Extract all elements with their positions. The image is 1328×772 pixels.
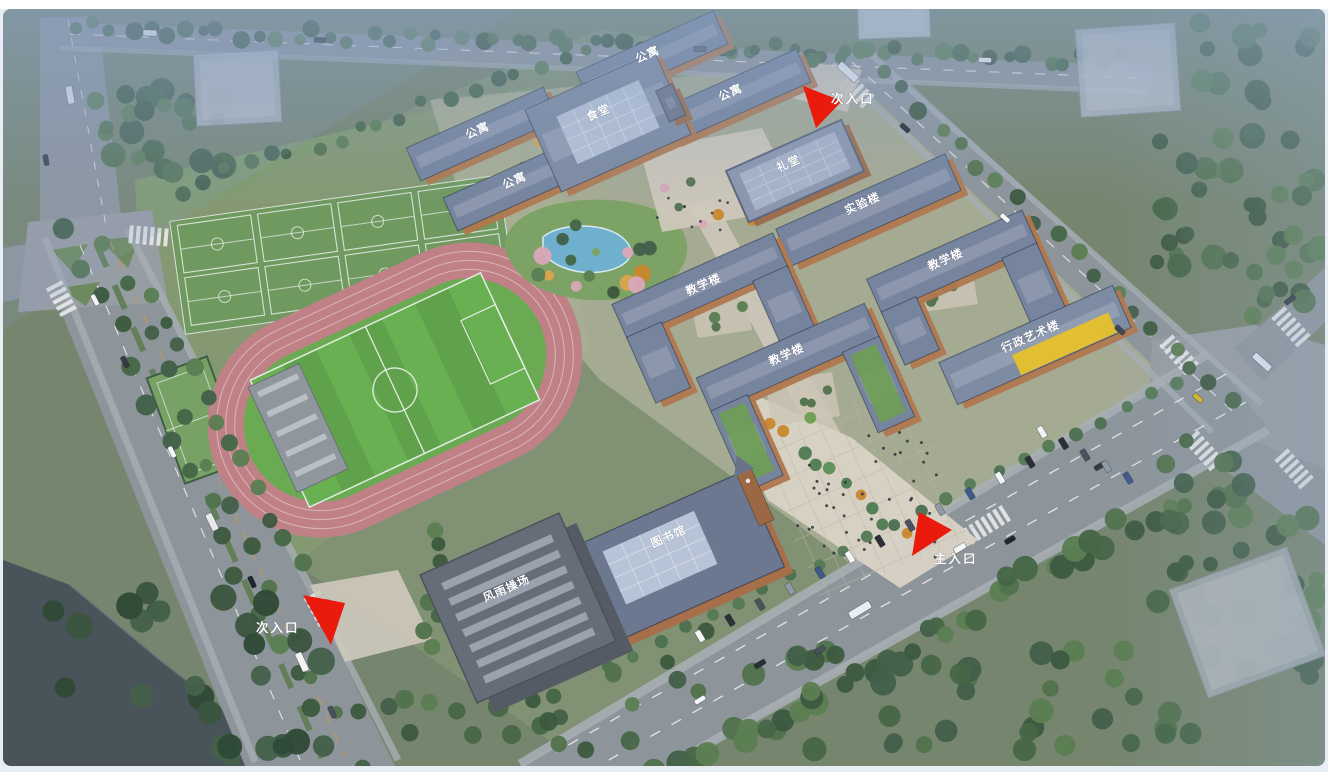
person-dot [796, 524, 799, 527]
person-dot [656, 216, 659, 219]
person-dot [898, 431, 901, 434]
rendering-frame: 次入口主入口次入口公寓公寓公寓公寓食堂礼堂实验楼教学楼教学楼教学楼行政艺术楼图书… [3, 9, 1325, 766]
person-dot [863, 548, 866, 551]
person-dot [857, 539, 860, 542]
person-dot [808, 528, 811, 531]
person-dot [832, 506, 835, 509]
person-dot [845, 531, 848, 534]
person-dot [811, 526, 814, 529]
person-dot [928, 512, 931, 515]
person-dot [888, 498, 891, 501]
person-dot [912, 480, 915, 483]
person-dot [719, 228, 722, 231]
person-dot [935, 473, 938, 476]
person-dot [874, 460, 877, 463]
person-dot [869, 541, 872, 544]
person-dot [844, 481, 847, 484]
person-dot [842, 493, 845, 496]
secondary-entrance-west-label: 次入口 [256, 620, 300, 635]
person-dot [906, 440, 909, 443]
person-dot [832, 552, 835, 555]
person-dot [691, 226, 694, 229]
main-entrance-label: 主入口 [934, 551, 978, 566]
person-dot [808, 464, 811, 467]
person-dot [813, 487, 816, 490]
person-dot [867, 434, 870, 437]
person-dot [926, 452, 929, 455]
atmospheric-haze-right [1100, 9, 1325, 766]
page-top-strip [0, 0, 1328, 9]
person-dot [699, 220, 702, 223]
person-dot [870, 518, 873, 521]
person-dot [826, 488, 829, 491]
person-dot [711, 212, 714, 215]
pond-island [592, 248, 600, 256]
person-dot [815, 480, 818, 483]
person-dot [910, 497, 913, 500]
person-dot [861, 493, 864, 496]
person-dot [825, 504, 828, 507]
campus-rendering: 次入口主入口次入口公寓公寓公寓公寓食堂礼堂实验楼教学楼教学楼教学楼行政艺术楼图书… [3, 9, 1325, 766]
person-dot [894, 453, 897, 456]
person-dot [899, 451, 902, 454]
person-dot [922, 461, 925, 464]
person-dot [818, 492, 821, 495]
person-dot [920, 441, 923, 444]
secondary-entrance-north-label: 次入口 [831, 91, 875, 106]
person-dot [882, 447, 885, 450]
person-dot [827, 483, 830, 486]
person-dot [843, 514, 846, 517]
person-dot [823, 544, 826, 547]
